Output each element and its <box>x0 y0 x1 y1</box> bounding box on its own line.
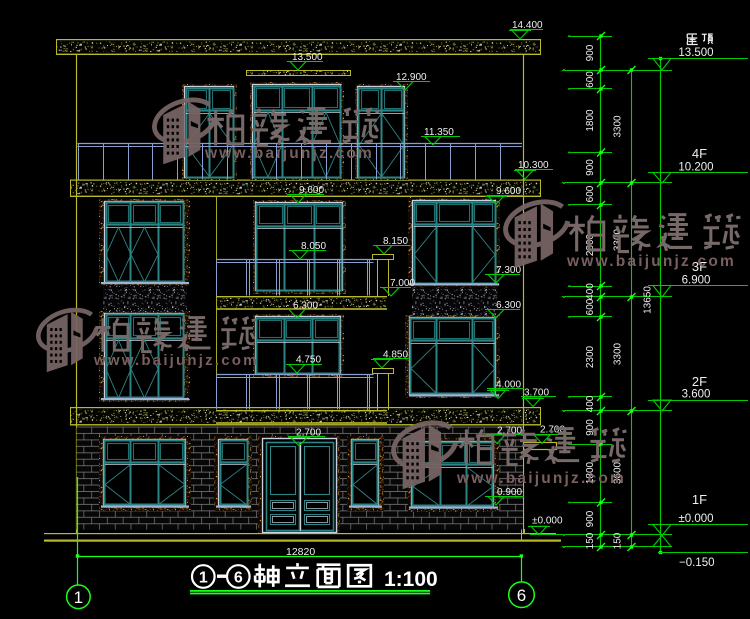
svg-text:1800: 1800 <box>585 109 596 132</box>
svg-text:1: 1 <box>199 570 208 587</box>
svg-text:6.900: 6.900 <box>682 275 711 287</box>
svg-text:3300: 3300 <box>613 115 624 138</box>
svg-text:400: 400 <box>585 283 596 300</box>
svg-text:900: 900 <box>585 510 596 527</box>
svg-text:www.baijunjz.com: www.baijunjz.com <box>93 352 259 369</box>
svg-text:±0.000: ±0.000 <box>532 516 563 527</box>
svg-text:6: 6 <box>517 586 526 605</box>
svg-text:600: 600 <box>585 185 596 202</box>
svg-text:6: 6 <box>234 570 243 587</box>
svg-text:www.baijunjz.com: www.baijunjz.com <box>566 253 736 270</box>
svg-text:1F: 1F <box>692 492 707 507</box>
svg-text:4F: 4F <box>692 146 707 161</box>
svg-text:900: 900 <box>585 44 596 61</box>
svg-text:3.600: 3.600 <box>682 389 711 401</box>
svg-text:600: 600 <box>585 71 596 88</box>
svg-text:10.200: 10.200 <box>678 162 713 174</box>
svg-text:900: 900 <box>585 159 596 176</box>
svg-text:600: 600 <box>585 298 596 315</box>
svg-text:1:100: 1:100 <box>384 568 438 591</box>
svg-text:±0.000: ±0.000 <box>678 513 713 525</box>
svg-text:150: 150 <box>613 532 624 549</box>
svg-text:12820: 12820 <box>286 546 315 558</box>
svg-text:13650: 13650 <box>643 286 654 314</box>
svg-text:1: 1 <box>74 588 83 607</box>
svg-text:www.baijunjz.com: www.baijunjz.com <box>204 145 374 162</box>
svg-text:3300: 3300 <box>613 342 624 365</box>
svg-text:−0.150: −0.150 <box>679 557 715 569</box>
svg-text:150: 150 <box>585 532 596 549</box>
svg-text:2300: 2300 <box>585 345 596 368</box>
svg-text:400: 400 <box>585 395 596 412</box>
svg-text:4.750: 4.750 <box>296 355 321 366</box>
svg-text:www.baijunjz.com: www.baijunjz.com <box>456 470 626 487</box>
svg-text:2F: 2F <box>692 374 707 389</box>
svg-text:13.500: 13.500 <box>678 47 713 59</box>
